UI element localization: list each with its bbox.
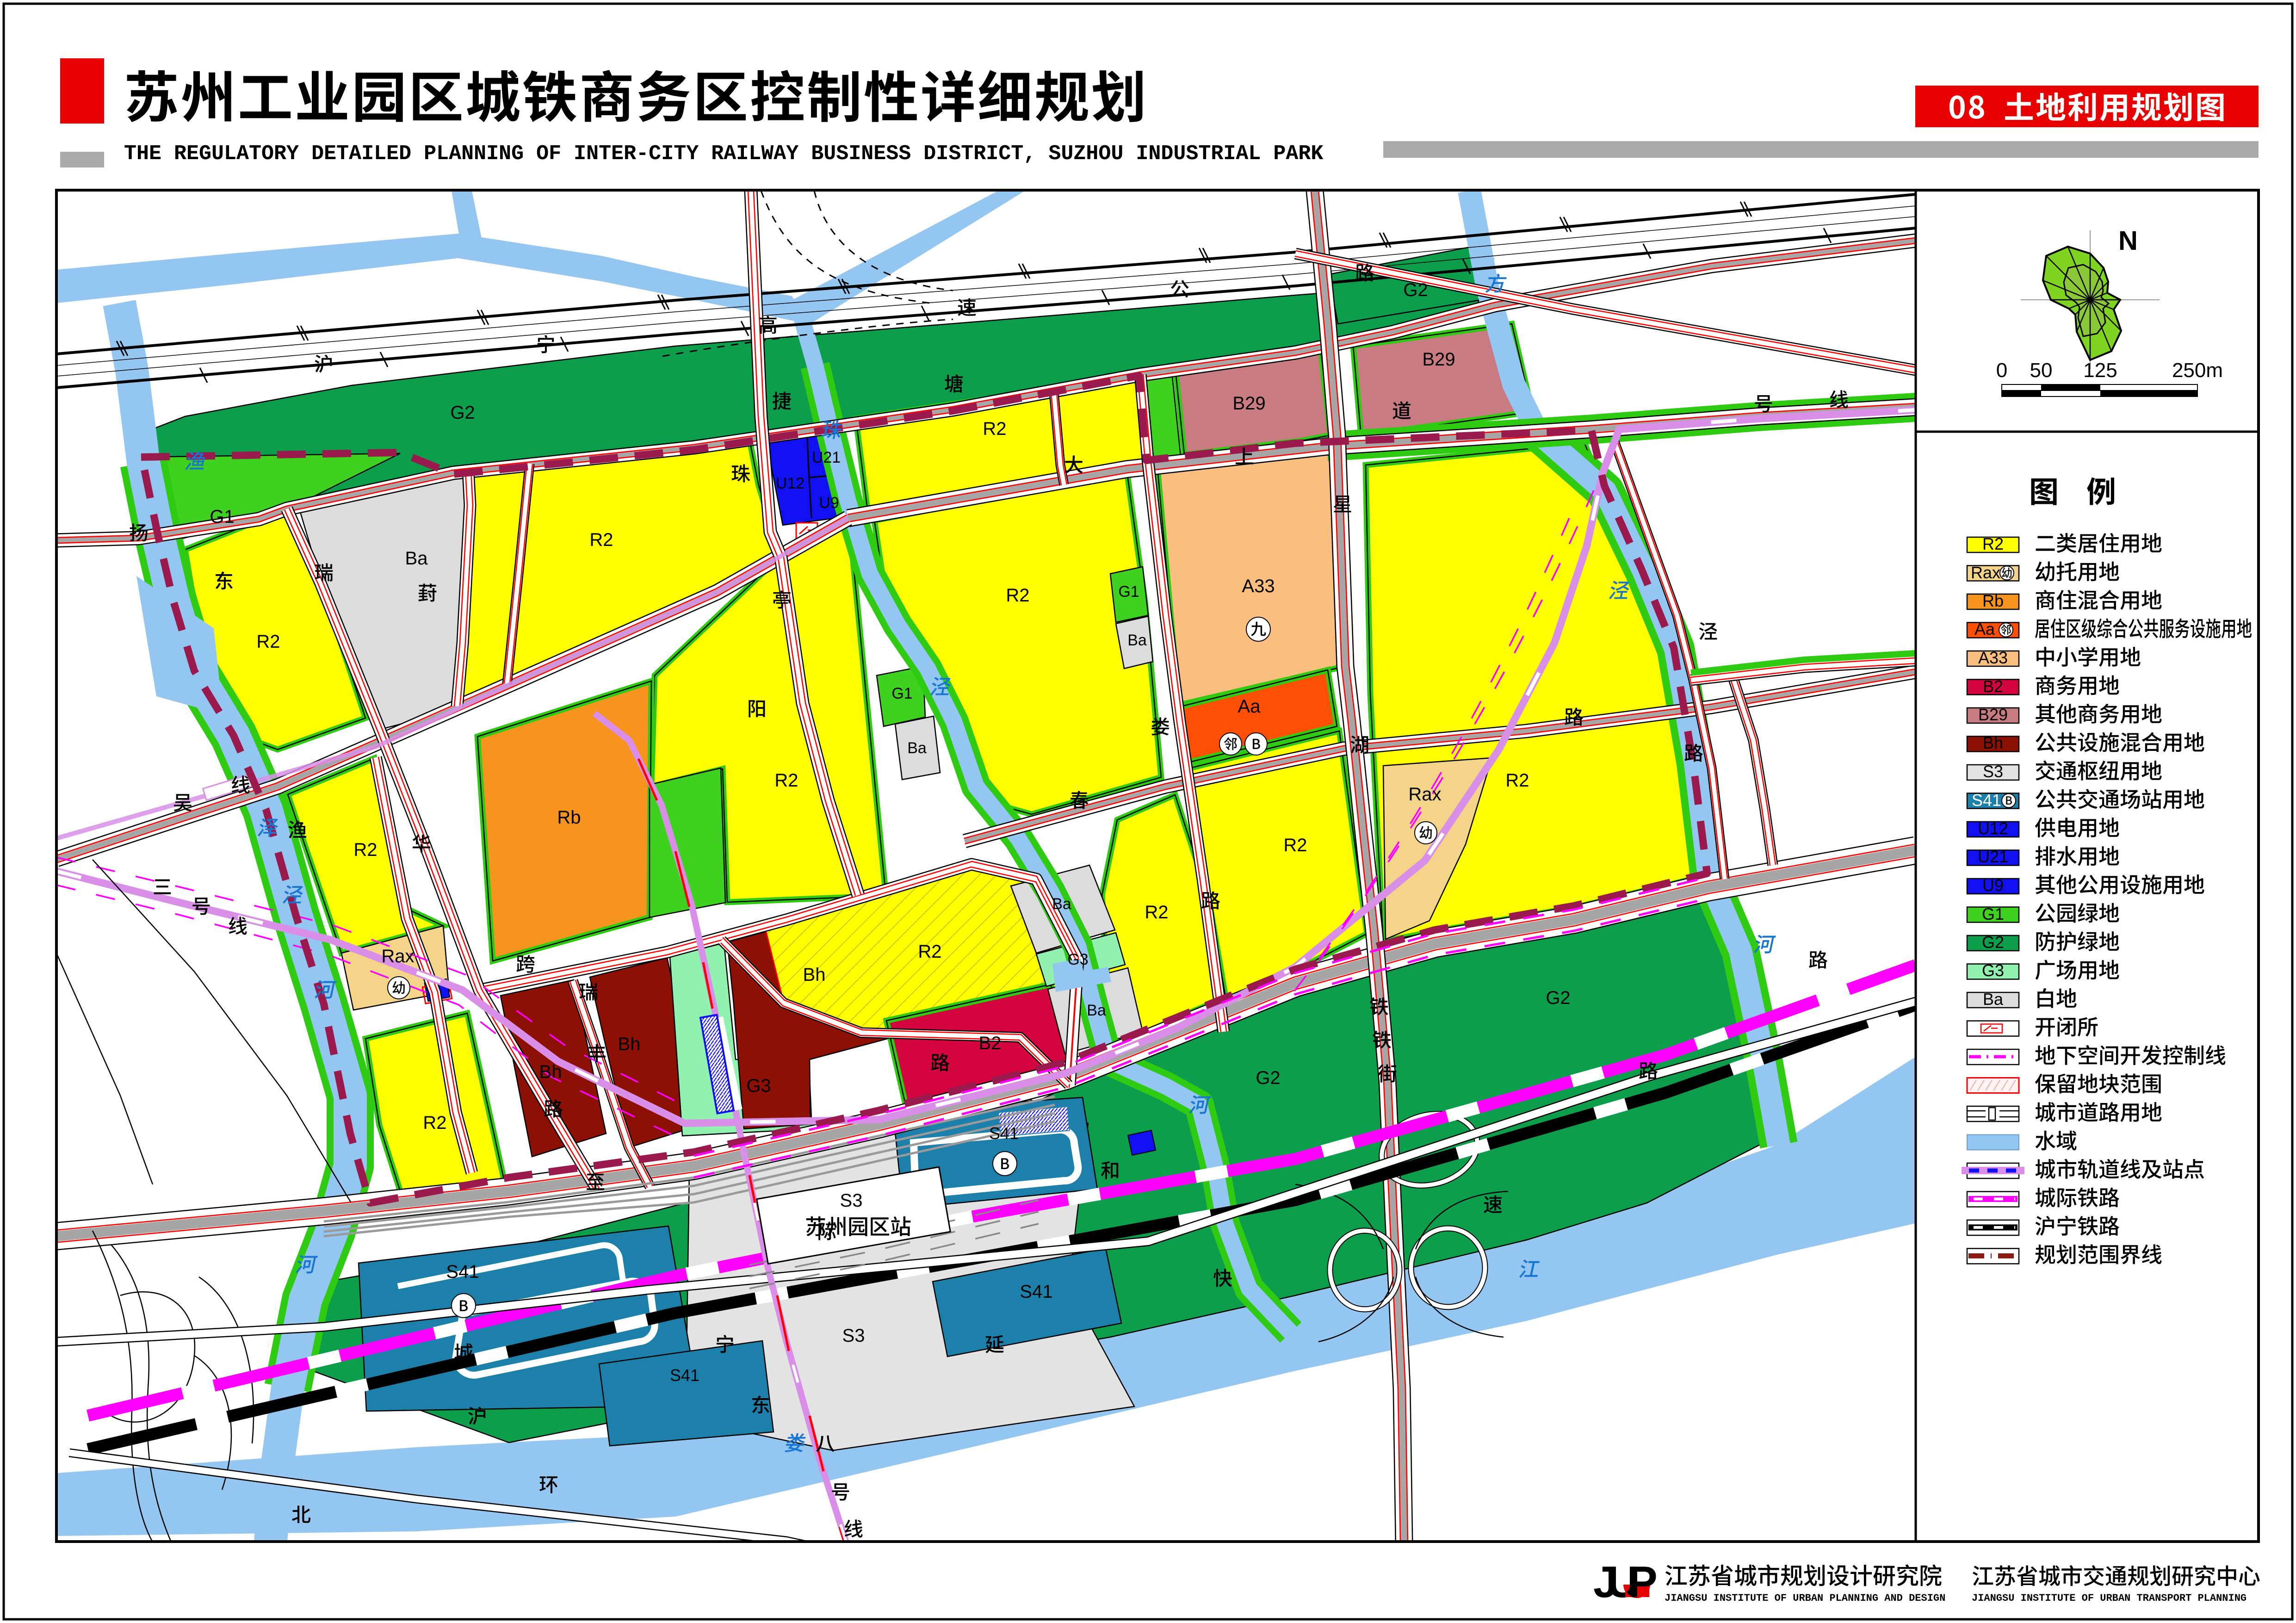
svg-text:Ba: Ba xyxy=(1983,990,2004,1009)
svg-text:R2: R2 xyxy=(1505,770,1529,791)
svg-text:B29: B29 xyxy=(1232,393,1265,414)
svg-text:Bh: Bh xyxy=(1983,733,2003,752)
svg-text:Bh: Bh xyxy=(618,1034,641,1054)
svg-text:G2: G2 xyxy=(1403,280,1428,300)
svg-text:G2: G2 xyxy=(1256,1068,1280,1088)
svg-text:R2: R2 xyxy=(1283,835,1307,855)
svg-text:R2: R2 xyxy=(256,632,280,652)
svg-text:R2: R2 xyxy=(918,942,941,962)
svg-text:S41: S41 xyxy=(1972,791,2001,810)
svg-text:Bh: Bh xyxy=(803,965,826,985)
svg-text:S41: S41 xyxy=(670,1366,699,1385)
svg-text:Ba: Ba xyxy=(1052,895,1071,913)
svg-text:250m: 250m xyxy=(2172,359,2223,382)
svg-text:Ba: Ba xyxy=(1127,632,1147,649)
svg-text:S41: S41 xyxy=(1020,1282,1052,1302)
svg-text:U21: U21 xyxy=(1978,847,2008,866)
svg-text:R2: R2 xyxy=(1982,534,2004,553)
svg-text:R2: R2 xyxy=(774,770,798,791)
svg-text:125: 125 xyxy=(2083,359,2117,382)
svg-text:Ba: Ba xyxy=(405,548,428,569)
svg-text:R2: R2 xyxy=(589,530,613,550)
svg-text:Rb: Rb xyxy=(557,807,581,828)
svg-text:THE REGULATORY DETAILED PLANNI: THE REGULATORY DETAILED PLANNING OF INTE… xyxy=(124,142,1323,166)
svg-text:B29: B29 xyxy=(1422,349,1455,370)
svg-text:S3: S3 xyxy=(842,1326,865,1346)
svg-text:Aa: Aa xyxy=(1238,696,1261,717)
svg-text:Rax: Rax xyxy=(381,946,414,966)
svg-text:G3: G3 xyxy=(746,1076,771,1096)
svg-text:G1: G1 xyxy=(1982,904,2004,923)
svg-text:R2: R2 xyxy=(1145,902,1168,923)
svg-text:Aa: Aa xyxy=(1974,619,1995,638)
svg-text:Ba: Ba xyxy=(907,739,927,757)
svg-text:U9: U9 xyxy=(1982,876,2004,895)
svg-text:G1: G1 xyxy=(210,507,234,527)
svg-text:JIANGSU INSTITUTE OF URBAN PLA: JIANGSU INSTITUTE OF URBAN PLANNING AND … xyxy=(1665,1592,1945,1604)
svg-text:G2: G2 xyxy=(450,403,475,423)
svg-text:G3: G3 xyxy=(1982,961,2004,980)
svg-text:R2: R2 xyxy=(1006,585,1029,606)
svg-text:Bh: Bh xyxy=(539,1062,562,1082)
svg-text:G2: G2 xyxy=(1546,988,1570,1008)
svg-text:S41: S41 xyxy=(446,1262,479,1282)
svg-text:JIANGSU INSTITUTE OF URBAN TRA: JIANGSU INSTITUTE OF URBAN TRANSPORT PLA… xyxy=(1972,1592,2246,1604)
svg-text:S41: S41 xyxy=(989,1124,1019,1143)
svg-text:G1: G1 xyxy=(891,685,912,702)
svg-text:N: N xyxy=(2118,226,2138,256)
svg-text:Rb: Rb xyxy=(1982,591,2004,610)
svg-text:R2: R2 xyxy=(983,419,1006,439)
svg-text:G3: G3 xyxy=(1067,951,1088,968)
svg-text:U12: U12 xyxy=(776,475,805,492)
svg-text:Rax: Rax xyxy=(1971,563,2000,582)
svg-text:50: 50 xyxy=(2030,359,2053,382)
svg-text:R2: R2 xyxy=(423,1113,446,1133)
svg-text:R2: R2 xyxy=(353,840,377,860)
svg-text:Ba: Ba xyxy=(1087,1002,1106,1019)
svg-text:U21: U21 xyxy=(812,449,841,466)
svg-text:0: 0 xyxy=(1996,359,2007,382)
svg-text:U12: U12 xyxy=(1978,819,2008,838)
svg-text:S3: S3 xyxy=(1983,762,2003,781)
svg-text:U9: U9 xyxy=(819,494,839,512)
svg-text:B29: B29 xyxy=(1978,705,2008,724)
svg-text:Rax: Rax xyxy=(1408,784,1441,805)
svg-text:B2: B2 xyxy=(1983,677,2003,696)
svg-text:S3: S3 xyxy=(840,1190,863,1211)
svg-text:G2: G2 xyxy=(1982,933,2004,952)
svg-text:A33: A33 xyxy=(1242,576,1275,596)
svg-text:A33: A33 xyxy=(1978,648,2008,667)
svg-text:G1: G1 xyxy=(1118,583,1139,601)
svg-text:B2: B2 xyxy=(979,1033,1002,1053)
